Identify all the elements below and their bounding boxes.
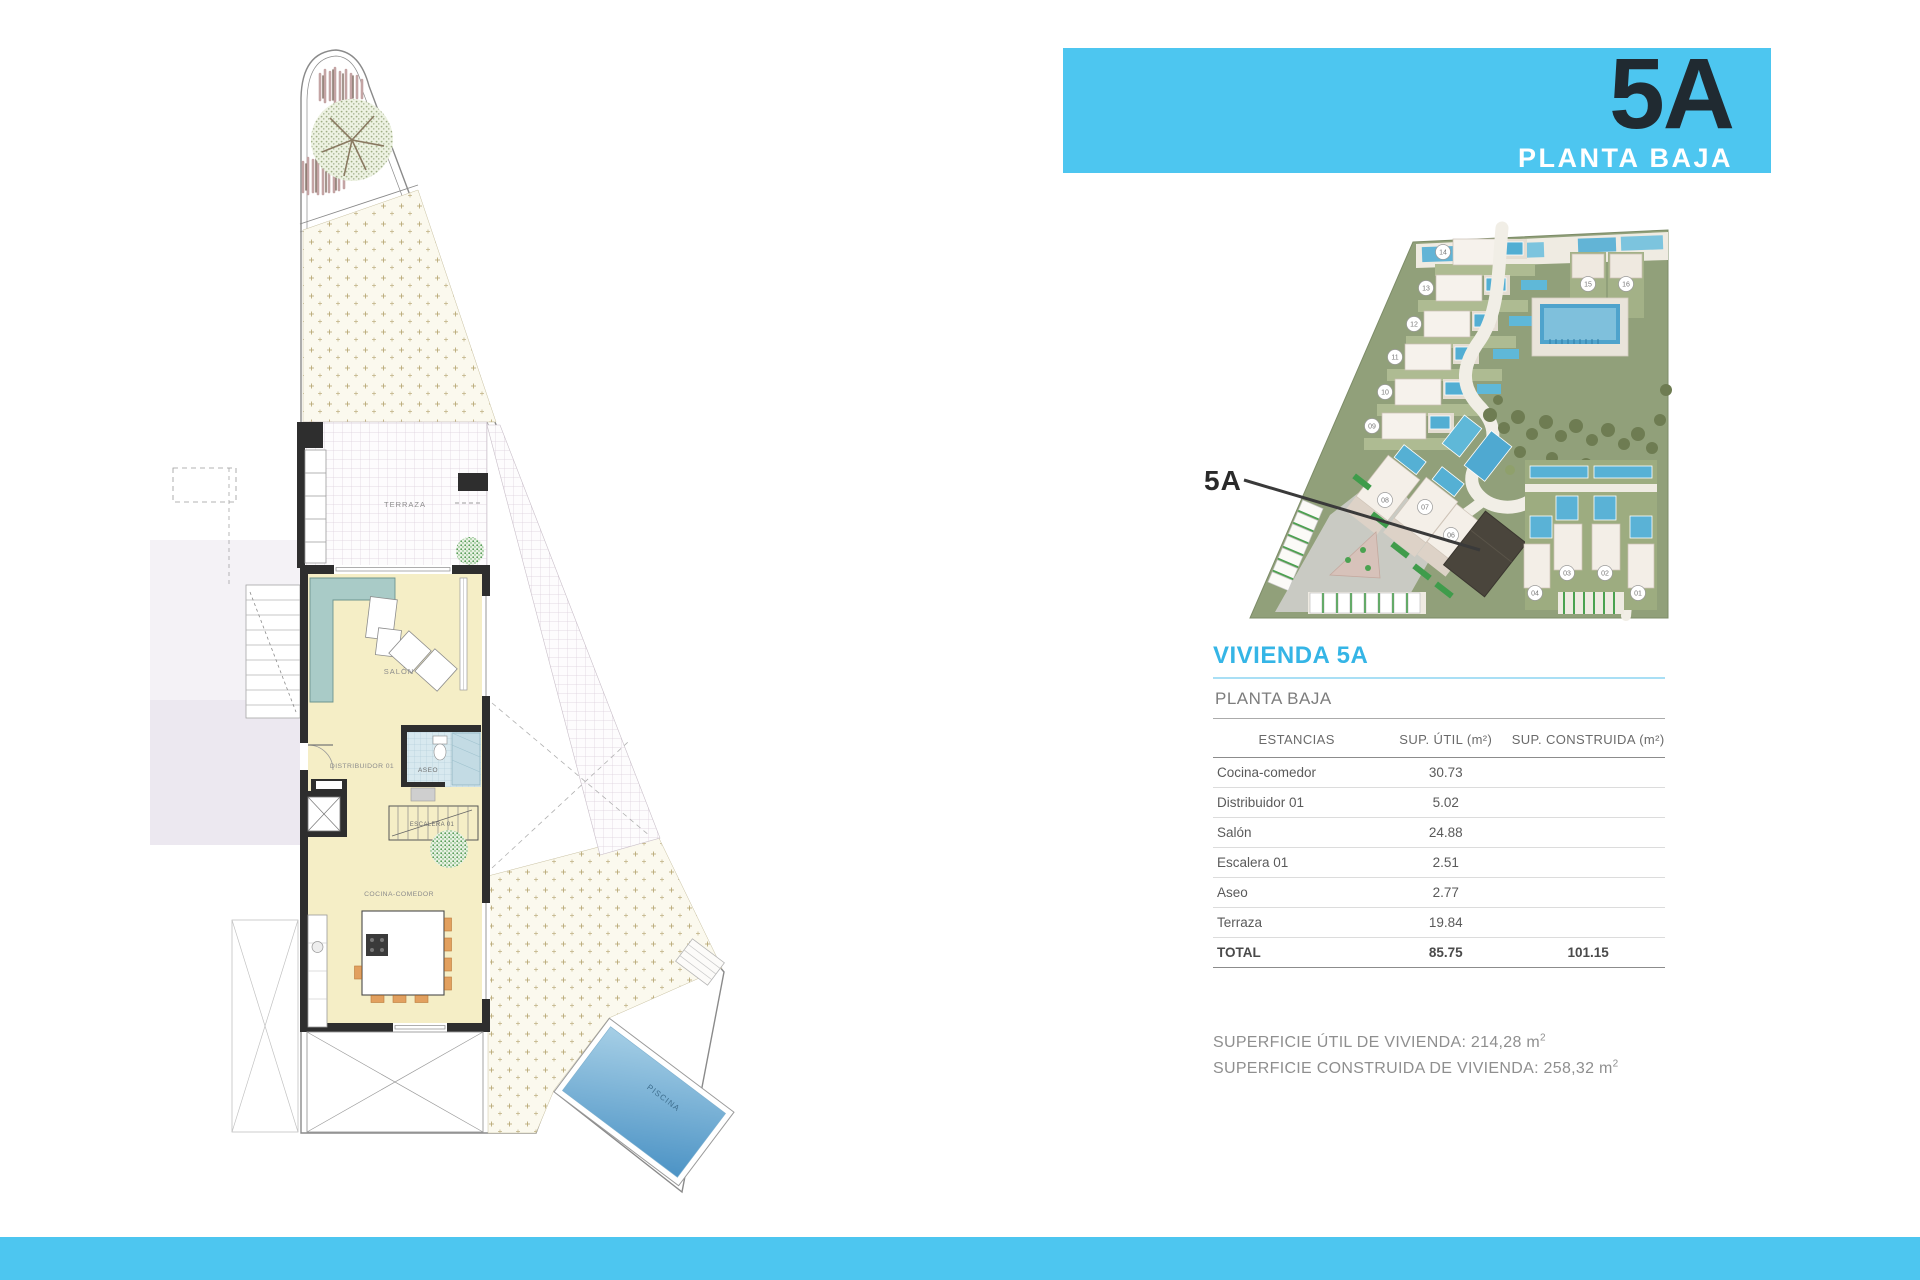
neighbour-staircase (246, 585, 300, 718)
room-util: 2.51 (1380, 848, 1511, 878)
badge-01: 01 (1634, 591, 1642, 598)
room-cons (1511, 878, 1665, 908)
room-cons (1511, 908, 1665, 938)
room-util: 2.77 (1380, 878, 1511, 908)
table-total-row: TOTAL 85.75 101.15 (1213, 938, 1665, 968)
aseo-label: ASEO (418, 767, 438, 774)
header-banner: 5A PLANTA BAJA (1063, 48, 1771, 173)
toilet-icon (433, 736, 447, 760)
cocina-label: COCINA-COMEDOR (364, 891, 434, 898)
distribuidor-label: DISTRIBUIDOR 01 (330, 763, 394, 770)
room-util: 19.84 (1380, 908, 1511, 938)
badge-07: 07 (1421, 505, 1429, 512)
footer-band (0, 1237, 1920, 1280)
badge-11: 11 (1391, 355, 1398, 362)
table-row: Escalera 01 2.51 (1213, 848, 1665, 878)
community-pool (1532, 298, 1628, 356)
table-row: Distribuidor 01 5.02 (1213, 788, 1665, 818)
shelf (460, 578, 467, 690)
gray-divider (1213, 718, 1665, 719)
bottom-parking (1308, 592, 1426, 614)
staircase: ESCALERA 01 (389, 806, 478, 840)
badge-08: 08 (1381, 498, 1389, 505)
room-name: Aseo (1213, 878, 1380, 908)
header-estancias: ESTANCIAS (1213, 721, 1380, 758)
siteplan-drawing: 14 13 12 11 10 09 15 16 08 07 06 03 02 0… (1180, 220, 1680, 630)
panel-title: VIVIENDA 5A (1213, 642, 1665, 670)
stove-icon (366, 934, 388, 956)
floorplan-drawing: TERRAZA (140, 30, 850, 1240)
badge-09: 09 (1368, 424, 1376, 431)
escalera-label: ESCALERA 01 (410, 822, 455, 828)
info-panel: VIVIENDA 5A PLANTA BAJA ESTANCIAS SUP. Ú… (1213, 642, 1665, 968)
terraza-label: TERRAZA (384, 500, 426, 509)
room-cons (1511, 788, 1665, 818)
summary-line-util: SUPERFICIE ÚTIL DE VIVIENDA: 214,28 m2 (1213, 1030, 1713, 1056)
badge-04: 04 (1531, 591, 1539, 598)
uncovered-patio (307, 1032, 483, 1132)
room-cons (1511, 818, 1665, 848)
total-util: 85.75 (1380, 938, 1511, 968)
neighbour-unit-context (150, 468, 301, 1132)
table-row: Cocina-comedor 30.73 (1213, 758, 1665, 788)
header-sup-util: SUP. ÚTIL (m²) (1380, 721, 1511, 758)
floor-title: PLANTA BAJA (1518, 143, 1733, 174)
page: 5A PLANTA BAJA (0, 0, 1920, 1280)
sink-counter (411, 788, 435, 801)
badge-12: 12 (1410, 322, 1418, 329)
unit-title: 5A (1609, 48, 1733, 141)
badge-10: 10 (1381, 390, 1389, 397)
cyan-divider (1213, 677, 1665, 679)
table-row: Aseo 2.77 (1213, 878, 1665, 908)
badge-02: 02 (1601, 571, 1609, 578)
room-name: Salón (1213, 818, 1380, 848)
total-label: TOTAL (1213, 938, 1380, 968)
panel-subtitle: PLANTA BAJA (1213, 687, 1665, 718)
badge-14: 14 (1439, 250, 1447, 257)
aseo-room: ASEO (401, 725, 481, 787)
room-cons (1511, 848, 1665, 878)
areas-table: ESTANCIAS SUP. ÚTIL (m²) SUP. CONSTRUIDA… (1213, 721, 1665, 968)
room-name: Distribuidor 01 (1213, 788, 1380, 818)
salon-label: SALÓN (384, 667, 414, 676)
dwelling-interior: SALÓN ASEO DISTRIBUIDOR 01 (300, 565, 490, 1032)
room-name: Cocina-comedor (1213, 758, 1380, 788)
room-cons (1511, 758, 1665, 788)
table-row: Terraza 19.84 (1213, 908, 1665, 938)
room-name: Terraza (1213, 908, 1380, 938)
shower (452, 733, 480, 785)
sink-icon (312, 942, 323, 953)
terrace-storage (305, 450, 326, 563)
room-util: 30.73 (1380, 758, 1511, 788)
patio-tree-icon (430, 830, 468, 868)
surface-summary: SUPERFICIE ÚTIL DE VIVIENDA: 214,28 m2 S… (1213, 1030, 1713, 1081)
badge-16: 16 (1622, 282, 1630, 289)
room-util: 24.88 (1380, 818, 1511, 848)
badge-03: 03 (1563, 571, 1571, 578)
upper-garden (303, 190, 496, 422)
badge-06: 06 (1447, 533, 1455, 540)
table-header-row: ESTANCIAS SUP. ÚTIL (m²) SUP. CONSTRUIDA… (1213, 721, 1665, 758)
badge-13: 13 (1422, 286, 1430, 293)
terrace-tree-icon (456, 537, 484, 565)
right-parking (1558, 592, 1624, 614)
summary-line-construida: SUPERFICIE CONSTRUIDA DE VIVIENDA: 258,3… (1213, 1056, 1713, 1082)
neighbour-plot-lines (232, 920, 298, 1132)
tree-icon (311, 99, 393, 181)
room-util: 5.02 (1380, 788, 1511, 818)
badge-15: 15 (1584, 282, 1592, 289)
room-name: Escalera 01 (1213, 848, 1380, 878)
total-cons: 101.15 (1511, 938, 1665, 968)
callout-5a-label: 5A (1204, 465, 1242, 496)
table-row: Salón 24.88 (1213, 818, 1665, 848)
header-sup-construida: SUP. CONSTRUIDA (m²) (1511, 721, 1665, 758)
